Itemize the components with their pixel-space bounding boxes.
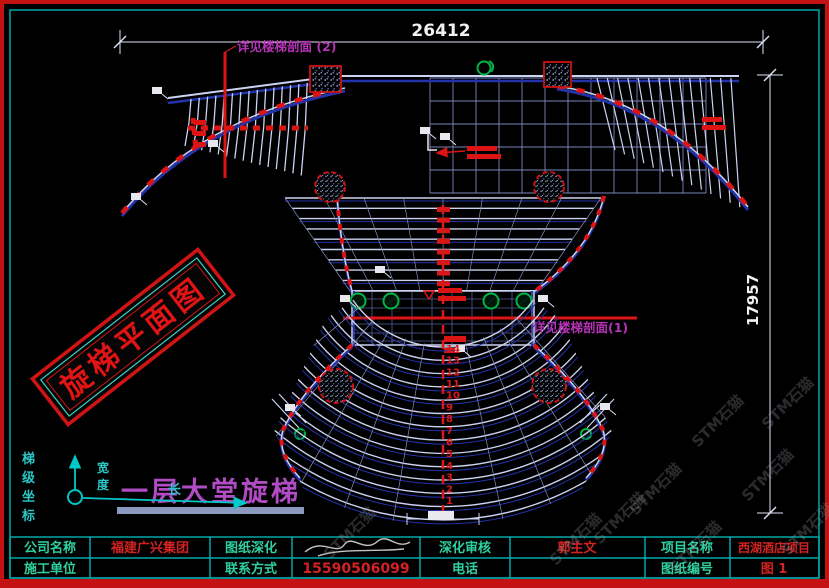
flag-marker bbox=[208, 140, 218, 147]
section-ref-2: 详见楼梯剖面 (2) bbox=[237, 39, 336, 54]
landing-edge bbox=[168, 76, 739, 98]
drafting-label: 图纸深化 bbox=[225, 540, 277, 556]
caption-underline bbox=[117, 507, 304, 514]
small-red-label bbox=[194, 120, 206, 125]
flag-leader bbox=[610, 410, 616, 415]
fan-arc bbox=[353, 300, 533, 347]
small-red-label bbox=[194, 131, 206, 136]
watermark-text: STM石猫 bbox=[738, 445, 797, 504]
small-red-label bbox=[702, 125, 726, 130]
column-section-square bbox=[544, 62, 571, 87]
small-red-label bbox=[438, 288, 462, 293]
north-symbol-icon bbox=[478, 62, 491, 75]
section-ref-2-leader bbox=[225, 46, 236, 52]
balustrade-red-dashes bbox=[122, 88, 345, 213]
small-red-label bbox=[437, 281, 450, 286]
floor-tile-grid bbox=[430, 78, 706, 193]
small-red-label bbox=[437, 260, 450, 265]
bottom-dim-label bbox=[428, 511, 454, 520]
company-label: 公司名称 bbox=[24, 540, 76, 556]
axis-vertical-label-char: 度 bbox=[97, 477, 110, 492]
tread-line bbox=[628, 78, 644, 163]
small-red-label bbox=[467, 146, 497, 151]
step-number: 14 bbox=[446, 344, 460, 355]
flag-leader bbox=[385, 273, 391, 278]
watermark-text: STM石猫 bbox=[320, 503, 379, 562]
flag-marker bbox=[152, 87, 162, 94]
section-ref-1: 详见楼梯剖面(1) bbox=[533, 320, 628, 335]
tread-line bbox=[185, 99, 191, 146]
step-number: 3 bbox=[446, 473, 453, 484]
small-red-label bbox=[437, 239, 450, 244]
tread-line bbox=[607, 78, 624, 154]
balustrade-shadow bbox=[122, 91, 345, 216]
step-number: 4 bbox=[446, 461, 453, 472]
small-red-label bbox=[444, 336, 466, 342]
rail-shadow bbox=[535, 198, 604, 293]
step-number: 8 bbox=[446, 414, 453, 425]
step-joint bbox=[490, 198, 522, 291]
phone-label: 电话 bbox=[452, 561, 478, 577]
small-red-label bbox=[437, 218, 450, 223]
flag-marker bbox=[131, 193, 141, 200]
flag-marker bbox=[375, 266, 385, 273]
company-value: 福建广兴集团 bbox=[110, 540, 189, 556]
small-red-label bbox=[702, 117, 722, 122]
step-joint bbox=[404, 198, 420, 291]
cad-drawing-canvas: 26412 17957 详见楼梯剖面 (2) 详见楼梯剖面(1) 旋梯平面图 一… bbox=[0, 0, 829, 588]
axis-side-label-char: 标 bbox=[21, 508, 35, 524]
step-joint bbox=[467, 198, 483, 291]
tread-line bbox=[218, 94, 224, 154]
red-leader-arrow bbox=[437, 151, 465, 153]
cad-window: 26412 17957 详见楼梯剖面 (2) 详见楼梯剖面(1) 旋梯平面图 一… bbox=[0, 0, 829, 588]
step-joint bbox=[536, 198, 601, 291]
right-dimension: 17957 bbox=[744, 69, 783, 519]
tread-line bbox=[690, 78, 702, 190]
landing-edge-shadow bbox=[168, 81, 739, 103]
step-number: 2 bbox=[446, 484, 453, 495]
fan-joint bbox=[258, 320, 374, 458]
step-number: 10 bbox=[446, 391, 460, 402]
step-number: 7 bbox=[446, 426, 453, 437]
caption-text: 一层大堂旋梯 bbox=[121, 477, 301, 508]
flag-leader bbox=[430, 134, 436, 139]
small-red-label bbox=[194, 142, 206, 147]
flag-marker bbox=[600, 403, 610, 410]
fan-joint bbox=[500, 329, 595, 482]
rail-red-dashes bbox=[337, 196, 352, 291]
small-red-label bbox=[437, 228, 450, 233]
tread-line bbox=[260, 89, 266, 165]
review-label: 深化审核 bbox=[439, 540, 491, 556]
top-dimension-label: 26412 bbox=[411, 21, 470, 41]
plan-stamp: 旋梯平面图 bbox=[32, 250, 233, 425]
axis-vertical-label-char: 宽 bbox=[96, 460, 109, 475]
axis-horizontal-label: 长 bbox=[168, 482, 182, 498]
top-dimension: 26412 bbox=[114, 21, 769, 54]
contact-value: 15590506099 bbox=[302, 561, 409, 577]
axis-side-label-char: 级 bbox=[22, 470, 36, 486]
planter-circle bbox=[534, 172, 564, 202]
step-number: 9 bbox=[446, 402, 453, 413]
flag-leader bbox=[548, 302, 554, 307]
builder-label: 施工单位 bbox=[24, 561, 76, 577]
contact-label: 联系方式 bbox=[225, 561, 277, 577]
planter-circle bbox=[319, 369, 353, 403]
tread-line bbox=[597, 78, 615, 150]
flag-marker bbox=[538, 295, 548, 302]
elevation-triangle-icon bbox=[424, 291, 434, 299]
small-red-label bbox=[437, 249, 450, 254]
watermark-text: STM石猫 bbox=[758, 373, 817, 432]
flag-marker bbox=[440, 133, 450, 140]
step-number: 12 bbox=[446, 367, 460, 378]
column-section-square bbox=[310, 66, 341, 92]
flag-marker bbox=[285, 404, 295, 411]
small-red-label bbox=[467, 154, 501, 159]
planter-circle bbox=[315, 172, 345, 202]
step-number-layer: 1234567891011121314 bbox=[446, 344, 460, 507]
axis-side-label-char: 梯 bbox=[22, 451, 35, 467]
small-red-label bbox=[437, 207, 450, 212]
balustrade-arc bbox=[122, 88, 345, 213]
small-red-label bbox=[437, 271, 450, 276]
right-dimension-label: 17957 bbox=[744, 274, 762, 326]
tread-line bbox=[700, 78, 711, 194]
axis-side-label-char: 坐 bbox=[22, 490, 35, 505]
step-number: 5 bbox=[446, 449, 453, 460]
tread-line bbox=[227, 93, 233, 156]
flag-leader bbox=[141, 200, 147, 205]
drafting-signature bbox=[305, 539, 410, 556]
step-number: 6 bbox=[446, 438, 453, 449]
bottom-red-band bbox=[4, 579, 825, 586]
fan-joint bbox=[344, 338, 406, 507]
step-joint bbox=[364, 198, 397, 291]
planter-circle bbox=[532, 369, 566, 403]
flag-marker bbox=[340, 295, 350, 302]
step-number: 1 bbox=[446, 496, 453, 507]
stamp-text: 旋梯平面图 bbox=[54, 271, 213, 406]
number-value: 图 1 bbox=[761, 562, 788, 577]
step-number: 13 bbox=[446, 356, 460, 367]
tread-line bbox=[710, 78, 720, 198]
step-number: 11 bbox=[446, 379, 460, 390]
watermark-text: STM石猫 bbox=[688, 391, 747, 450]
flag-leader bbox=[162, 94, 168, 99]
